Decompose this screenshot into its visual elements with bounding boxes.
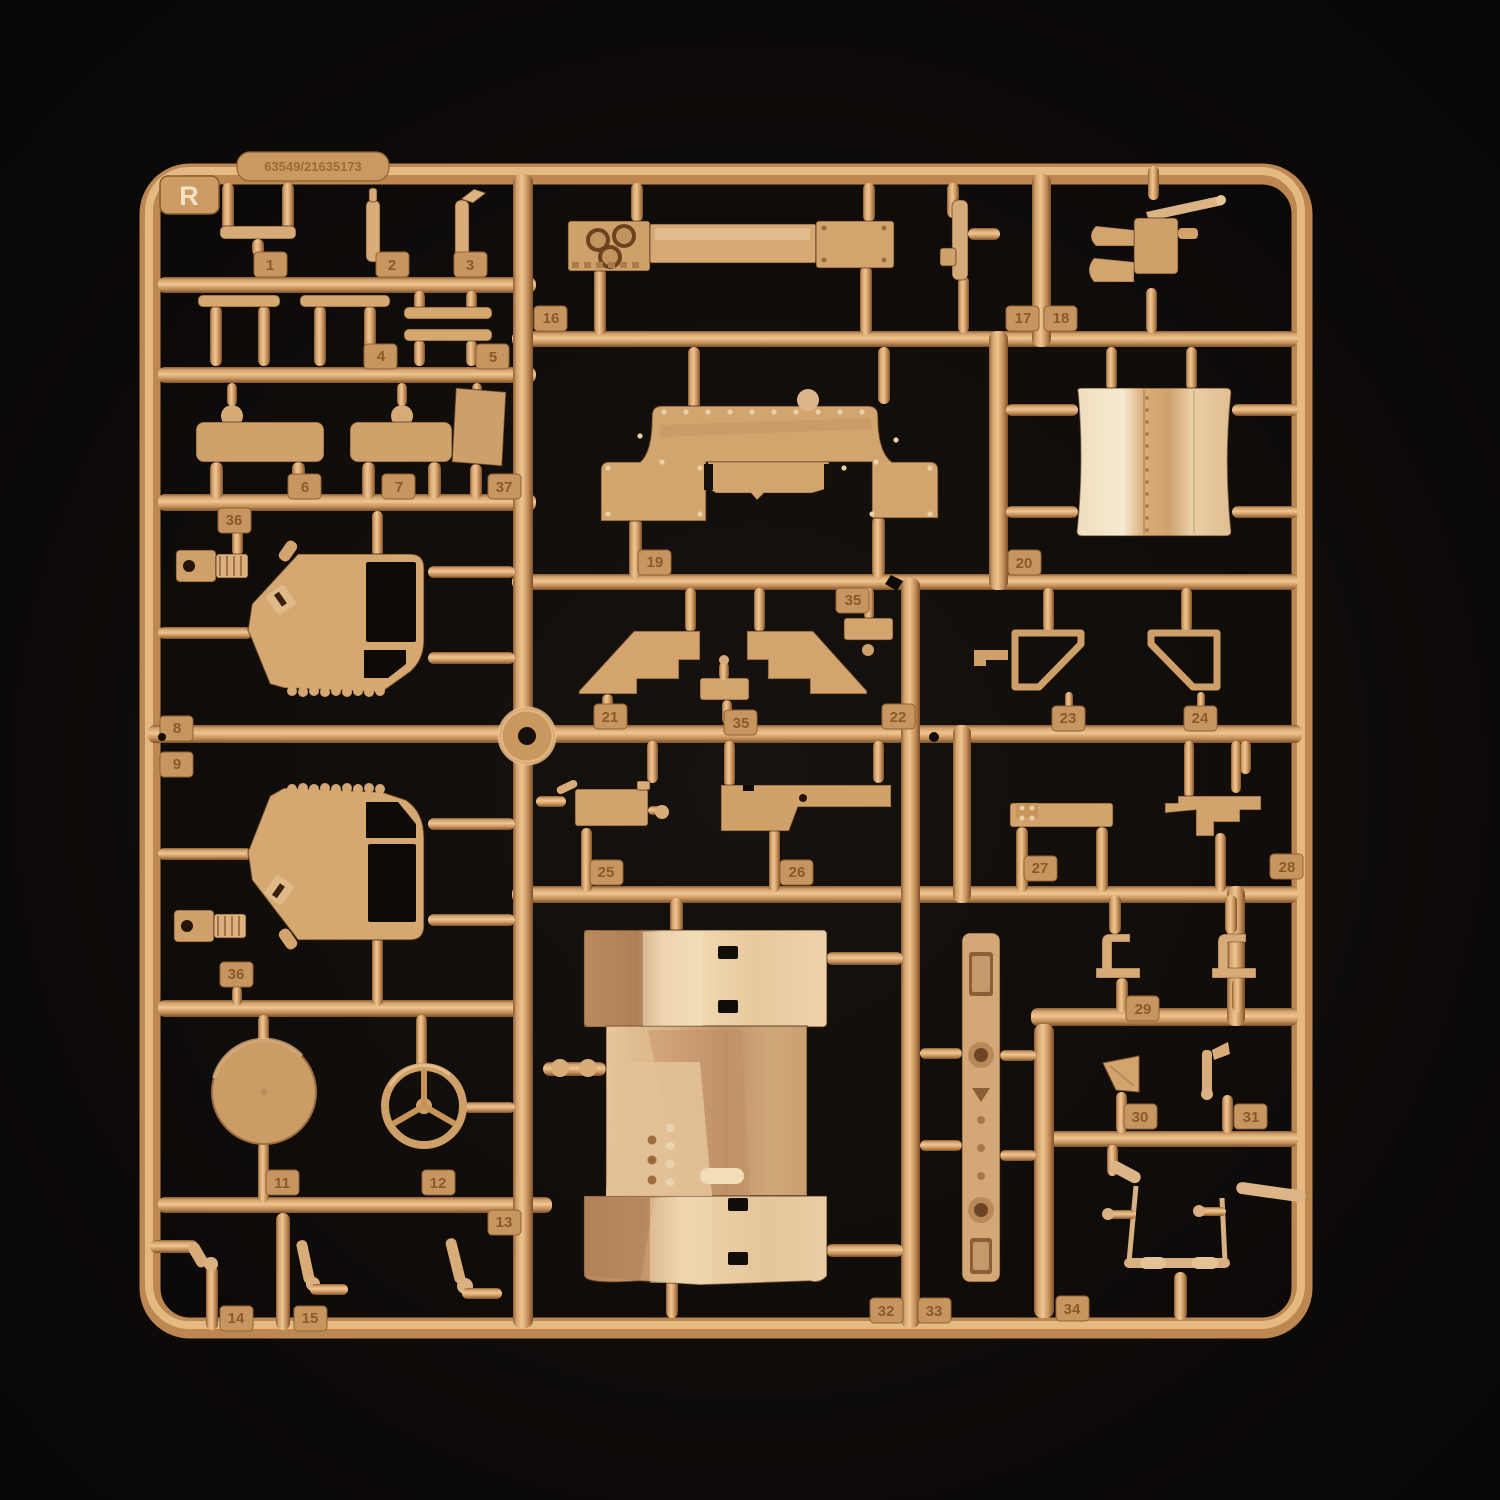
- svg-text:1: 1: [266, 257, 274, 274]
- svg-text:36: 36: [228, 966, 245, 983]
- svg-text:20: 20: [1016, 555, 1033, 572]
- svg-text:5: 5: [489, 349, 497, 366]
- svg-text:63549/21635173: 63549/21635173: [264, 159, 362, 174]
- svg-text:29: 29: [1135, 1001, 1152, 1018]
- svg-text:14: 14: [228, 1310, 245, 1327]
- svg-text:11: 11: [274, 1175, 290, 1192]
- svg-text:7: 7: [395, 479, 403, 496]
- svg-text:23: 23: [1060, 710, 1077, 727]
- svg-text:35: 35: [733, 715, 750, 732]
- svg-text:6: 6: [301, 479, 309, 496]
- svg-text:33: 33: [926, 1303, 943, 1320]
- svg-text:8: 8: [173, 720, 181, 737]
- svg-text:30: 30: [1132, 1109, 1149, 1126]
- svg-text:37: 37: [496, 479, 513, 496]
- svg-text:19: 19: [647, 554, 664, 571]
- svg-text:13: 13: [496, 1214, 513, 1231]
- svg-text:16: 16: [543, 310, 560, 327]
- svg-text:R: R: [179, 181, 199, 211]
- svg-text:21: 21: [602, 709, 619, 726]
- svg-text:36: 36: [226, 512, 243, 529]
- svg-text:28: 28: [1279, 859, 1296, 876]
- svg-text:15: 15: [302, 1310, 319, 1327]
- svg-text:4: 4: [377, 348, 386, 365]
- svg-text:34: 34: [1064, 1301, 1081, 1318]
- svg-text:25: 25: [598, 864, 615, 881]
- svg-text:17: 17: [1015, 310, 1032, 327]
- svg-text:32: 32: [878, 1303, 895, 1320]
- svg-text:18: 18: [1053, 310, 1070, 327]
- svg-text:12: 12: [430, 1175, 447, 1192]
- svg-text:22: 22: [890, 709, 907, 726]
- svg-text:31: 31: [1243, 1109, 1260, 1126]
- svg-text:2: 2: [388, 257, 396, 274]
- svg-text:9: 9: [173, 756, 181, 773]
- svg-text:3: 3: [466, 257, 474, 274]
- svg-text:27: 27: [1032, 860, 1049, 877]
- svg-text:35: 35: [845, 592, 862, 609]
- svg-text:24: 24: [1192, 710, 1209, 727]
- svg-text:26: 26: [789, 864, 806, 881]
